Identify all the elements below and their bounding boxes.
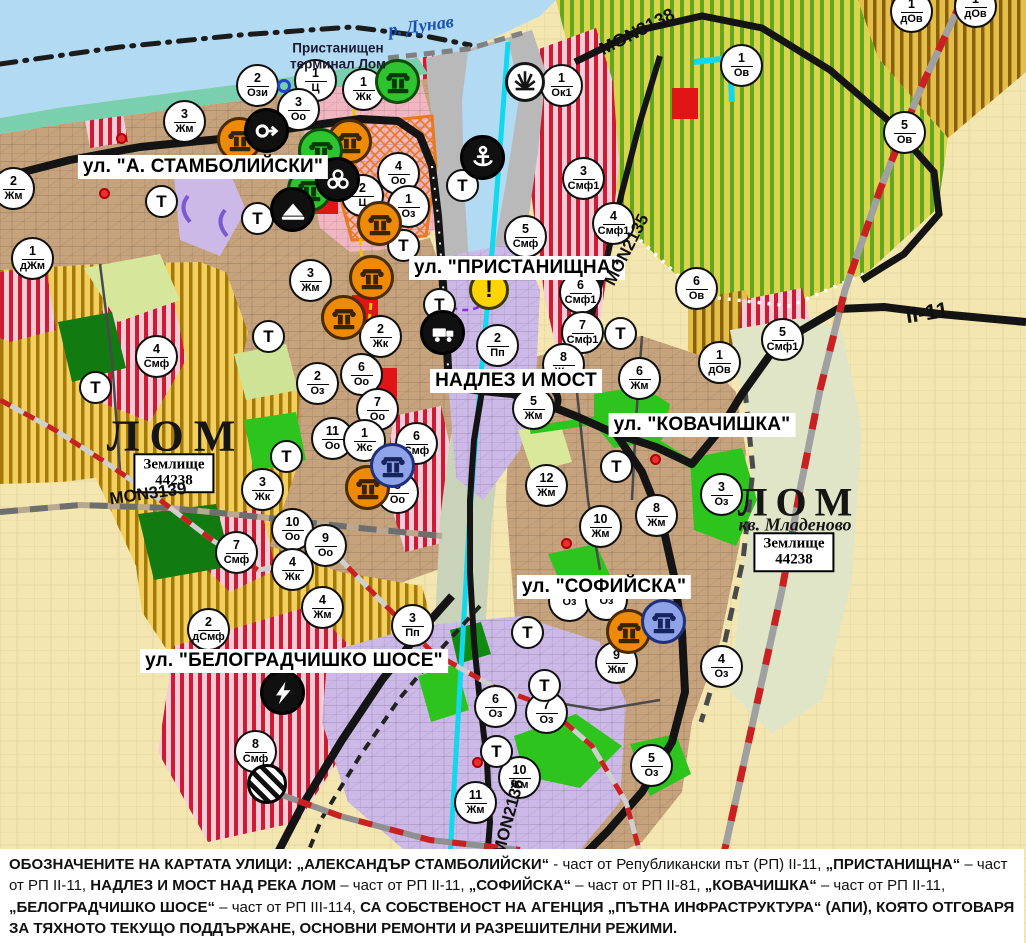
note-segment: „БЕЛОГРАДЧИШКО ШОСЕ“ (9, 899, 215, 916)
street-label: ул. "СОФИЙСКА" (517, 575, 691, 599)
map-legal-note: ОБОЗНАЧЕНИТЕ НА КАРТАТА УЛИЦИ: „АЛЕКСАНД… (0, 849, 1024, 943)
street-label: ул. "А. СТАМБОЛИЙСКИ" (78, 155, 328, 179)
road-code-label: MON2136 (489, 777, 528, 857)
note-segment: ОБОЗНАЧЕНИТЕ НА КАРТАТА УЛИЦИ: „АЛЕКСАНД… (9, 856, 549, 873)
note-segment: – част от РП III-114, (215, 899, 360, 916)
street-label: ул. "БЕЛОГРАДЧИШКО ШОСЕ" (140, 649, 448, 673)
zoning-map[interactable]: ЛОМЛОМкв. МладеновоЗемлище44238Землище44… (0, 0, 1026, 943)
street-labels-layer: ул. "А. СТАМБОЛИЙСКИ"ул. "ПРИСТАНИЩНА"НА… (0, 0, 1026, 943)
road-code-label: MON3139 (108, 479, 188, 510)
note-segment: „ПРИСТАНИЩНА“ (826, 856, 961, 873)
river-label: р. Дунав (387, 11, 455, 41)
street-label: НАДЛЕЗ И МОСТ (430, 369, 602, 393)
road-code-label: MON3138 (596, 4, 679, 60)
note-segment: – част от РП II-11, (336, 877, 469, 894)
street-label: ул. "ПРИСТАНИЩНА" (409, 256, 625, 280)
note-segment: „СОФИЙСКА“ (469, 877, 571, 894)
note-segment: – част от РП II-11, (817, 877, 945, 894)
street-label: ул. "КОВАЧИШКА" (609, 413, 796, 437)
note-segment: – част от РП II-81, (571, 877, 705, 894)
note-segment: НАДЛЕЗ И МОСТ НАД РЕКА ЛОМ (90, 877, 336, 894)
terminal-label: Пристанищентерминал Лом (290, 40, 386, 71)
note-segment: - част от Републикански път (РП) II-11, (549, 856, 825, 873)
road-code-label: MON2135 (601, 211, 654, 289)
road-code-label: II-11 (904, 297, 950, 329)
note-segment: „КОВАЧИШКА“ (705, 877, 817, 894)
